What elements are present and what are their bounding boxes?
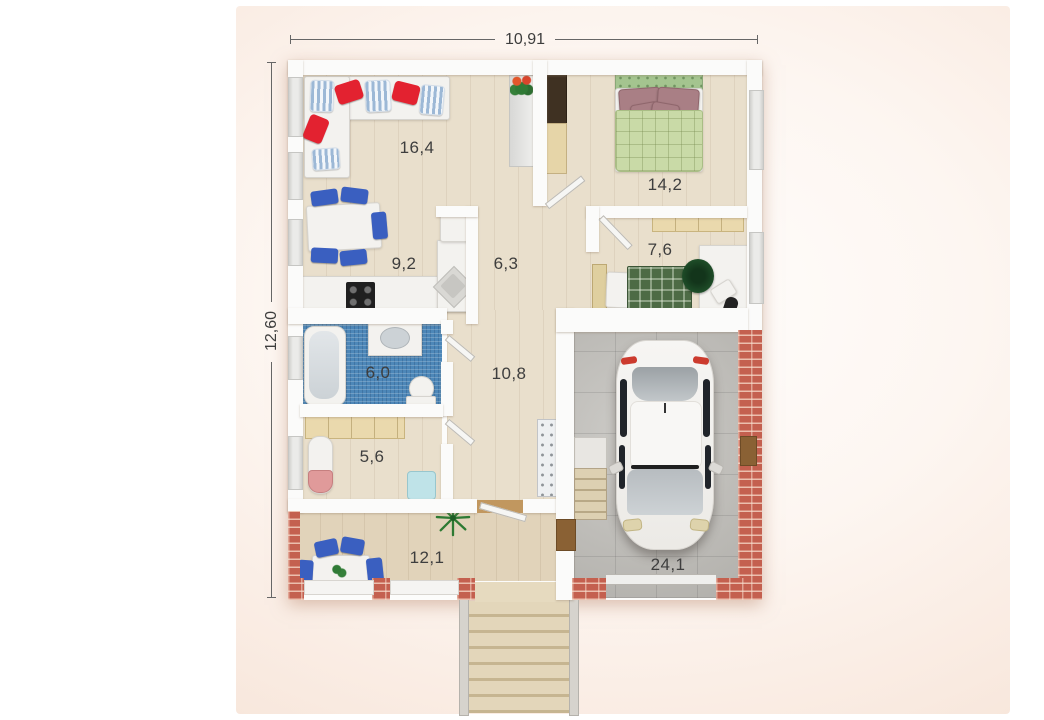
garage-area-label: 24,1 xyxy=(651,555,686,575)
sofa-pillow-striped-4 xyxy=(311,147,340,171)
bathroom-area-label: 6,0 xyxy=(366,363,391,383)
wall-terrace-north-left xyxy=(288,499,477,513)
car xyxy=(616,340,714,550)
wall-bath-corridor-1 xyxy=(441,320,453,334)
office-area-label: 7,6 xyxy=(648,240,673,260)
dimension-tick-top-right xyxy=(757,35,758,44)
dimension-tick-top-left xyxy=(290,35,291,44)
flower-pot-icon xyxy=(510,74,533,98)
bedroom-area-label: 14,2 xyxy=(648,175,683,195)
entrance-steps xyxy=(466,601,570,713)
garage-steps xyxy=(574,468,607,520)
terrace-area-label: 12,1 xyxy=(410,548,445,568)
ironing-board-cover xyxy=(308,470,333,493)
dining-chair-3 xyxy=(371,211,388,239)
window-living-1 xyxy=(288,77,303,137)
hall-area-label: 6,3 xyxy=(494,254,519,274)
corridor-area-label: 10,8 xyxy=(492,364,527,384)
floor-plan: 10,91 12,60 xyxy=(0,0,1044,720)
dimension-line-top-right xyxy=(555,39,758,40)
washbasin xyxy=(380,327,410,349)
wall-bedroom-south xyxy=(586,206,747,218)
brick-pier-terrace-1 xyxy=(288,578,304,600)
garage-steps-landing xyxy=(574,437,607,470)
car-rear-window xyxy=(632,367,698,401)
car-antenna xyxy=(664,403,666,413)
car-windshield xyxy=(627,469,703,515)
car-taillight-left xyxy=(621,356,638,365)
garage-side-door xyxy=(740,436,757,466)
wall-bath-corridor-3 xyxy=(441,444,453,502)
laundry-basket xyxy=(407,471,436,500)
living-room-area-label: 16,4 xyxy=(400,138,435,158)
wall-north xyxy=(288,60,762,75)
window-dining xyxy=(288,219,303,266)
entrance-steps-rail-left xyxy=(459,599,469,716)
car-side-window-left-rear xyxy=(620,379,627,437)
dining-chair-5 xyxy=(339,249,367,267)
wall-office-west xyxy=(586,206,599,252)
dimension-tick-left-bottom xyxy=(267,597,276,598)
dimension-line-left-bottom xyxy=(271,362,272,598)
wall-living-bedroom xyxy=(533,60,547,206)
wall-kitchen-south xyxy=(288,308,447,324)
sofa-pillow-striped-1 xyxy=(309,80,334,113)
car-headlight-right xyxy=(689,518,709,532)
dimension-label-width: 10,91 xyxy=(505,31,545,49)
wall-corridor-garage-upper xyxy=(556,308,574,519)
garage-door xyxy=(606,574,716,585)
dimension-tick-left-top xyxy=(267,62,276,63)
wall-garage-north xyxy=(556,308,748,332)
terrace-railing-1 xyxy=(304,580,374,595)
dining-table xyxy=(306,202,382,252)
dimension-line-left-top xyxy=(271,62,272,302)
terrace-railing-2 xyxy=(390,580,459,595)
car-taillight-right xyxy=(693,356,710,365)
entrance-steps-rail-right xyxy=(569,599,579,716)
stove xyxy=(346,282,375,310)
brick-pier-terrace-3 xyxy=(457,578,475,600)
dimension-label-height: 12,60 xyxy=(263,311,281,351)
dining-area-label: 9,2 xyxy=(392,254,417,274)
window-utility xyxy=(288,436,303,490)
car-roof xyxy=(630,401,702,469)
sofa-pillow-striped-2 xyxy=(364,79,392,112)
wall-bath-utility xyxy=(300,404,443,417)
dimension-line-top-left xyxy=(290,39,495,40)
window-office xyxy=(749,232,764,304)
brick-pier-terrace-2 xyxy=(372,578,390,600)
brick-pier-garage-left xyxy=(572,578,606,600)
desk-chair xyxy=(682,259,714,293)
front-door xyxy=(556,519,576,551)
window-bedroom xyxy=(749,90,764,170)
dining-chair-4 xyxy=(311,247,339,263)
terrace-table-plant-icon xyxy=(330,563,347,579)
dining-chair-2 xyxy=(340,186,369,204)
window-bathroom xyxy=(288,336,303,380)
car-side-window-right-rear xyxy=(703,379,710,437)
single-bed-headboard xyxy=(592,264,607,314)
wall-stub-fridge xyxy=(436,206,478,217)
sofa-pillow-striped-3 xyxy=(419,84,446,116)
bed-duvet xyxy=(615,110,703,172)
wall-hall-west xyxy=(466,206,478,324)
car-headlight-left xyxy=(622,518,642,532)
utility-area-label: 5,6 xyxy=(360,447,385,467)
window-living-2 xyxy=(288,152,303,200)
brick-pier-garage-right xyxy=(716,578,748,600)
bathtub-basin xyxy=(309,331,339,399)
